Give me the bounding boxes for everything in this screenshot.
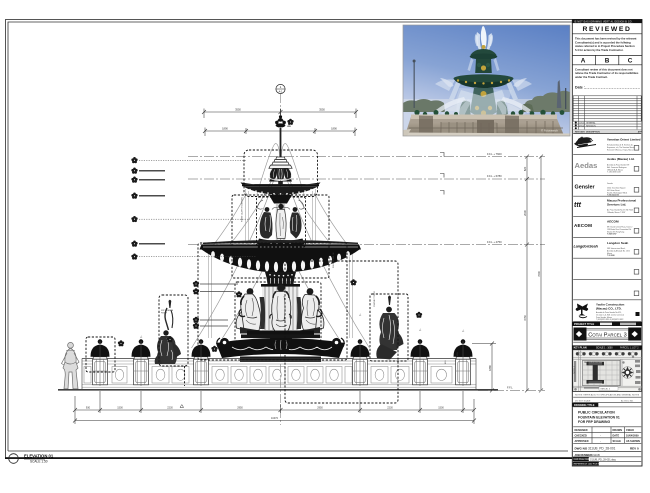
svg-text:10470: 10470 [271, 417, 279, 420]
svg-text:NOTES: REFER ALSO TO SPECIFICA: NOTES: REFER ALSO TO SPECIFICATION AND G… [575, 394, 640, 397]
svg-text:A: A [581, 58, 586, 65]
svg-text:ELEVATION 01: ELEVATION 01 [24, 454, 54, 459]
svg-text:F.F.L + 7600: F.F.L + 7600 [487, 152, 502, 156]
svg-text:CHECKED: CHECKED [575, 434, 588, 437]
svg-text:DATE: DATE [580, 130, 586, 133]
svg-text:APP: APP [638, 130, 643, 133]
svg-text:FINISH: FINISH [161, 313, 168, 315]
svg-text:relieve the Trade Contractor o: relieve the Trade Contractor of its resp… [575, 71, 639, 75]
svg-text:Executive Offices-L2, Taipa, M: Executive Offices-L2, Taipa, Macau [607, 148, 633, 151]
svg-text:Gensler: Gensler [575, 185, 596, 191]
svg-text:1880: 1880 [488, 365, 492, 371]
svg-text:FIBRE GLASS FOUNTAIN: FIBRE GLASS FOUNTAIN [241, 197, 244, 222]
svg-text:CAD FILE NAME: CAD FILE NAME [574, 458, 592, 461]
svg-text:DRAWING TITLE: DRAWING TITLE [574, 403, 595, 407]
svg-text:14 Andar, Macau T 2837: 14 Andar, Macau T 2837 [607, 211, 625, 214]
svg-text:820: 820 [523, 166, 527, 171]
svg-text:PARCEL 1: PARCEL 1 [573, 366, 576, 374]
svg-text:PROJECT TITLE: PROJECT TITLE [574, 322, 594, 326]
svg-text:A1 594 x 841: A1 594 x 841 [621, 399, 634, 402]
svg-text:2950: 2950 [237, 407, 243, 410]
svg-text:C: C [628, 58, 633, 65]
svg-text:DWG NO: DWG NO [575, 446, 588, 450]
svg-text:311UB: 311UB [592, 453, 600, 457]
svg-text:SCALE 1 : 1000: SCALE 1 : 1000 [596, 347, 613, 350]
svg-text:10/04: 10/04 [579, 123, 585, 125]
svg-text:4750: 4750 [523, 315, 527, 321]
svg-text:1890: 1890 [222, 127, 228, 131]
svg-text:Date :: Date : [575, 85, 585, 89]
svg-text:DATE: DATE [613, 434, 620, 437]
svg-text:This document has been revised: This document has been revised by the re… [575, 37, 636, 41]
svg-text:status referred to in Projec: status referred to in Project Procedure … [575, 44, 635, 48]
svg-text:SCALE: SCALE [613, 440, 622, 443]
svg-text:REVISION: REVISION [586, 125, 596, 127]
svg-text:311UB_PD_28-001: 311UB_PD_28-001 [588, 446, 616, 450]
svg-text:KEY PLAN: KEY PLAN [574, 346, 587, 350]
svg-text:REVIEWED: REVIEWED [582, 26, 631, 33]
svg-text:Services Ltd.: Services Ltd. [607, 202, 626, 206]
svg-text:F.F.L: F.F.L [507, 386, 513, 390]
svg-text:PUBLIC CIRCULATION: PUBLIC CIRCULATION [578, 411, 615, 415]
svg-text:930: 930 [86, 407, 91, 410]
svg-text:PARCEL 1, LOT 2: PARCEL 1, LOT 2 [620, 347, 639, 350]
svg-text:DESIGNED: DESIGNED [575, 429, 588, 432]
svg-text:09/04: 09/04 [579, 125, 585, 127]
svg-text:PARCEL 3: PARCEL 3 [601, 388, 611, 391]
svg-text:B: B [605, 58, 610, 65]
svg-text:3550: 3550 [235, 108, 241, 112]
svg-text:Gensler: Gensler [607, 182, 613, 185]
svg-text:2950: 2950 [317, 407, 323, 410]
svg-text:Consultants(s) and is accorded: Consultants(s) and is accorded the follw… [575, 40, 631, 44]
svg-text:Venetian Orient Limited: Venetian Orient Limited [607, 138, 641, 142]
svg-text:REV 0: REV 0 [630, 446, 639, 450]
svg-text:T 28 2826: T 28 2826 [607, 255, 615, 257]
svg-text:FULL DETAIL 02: FULL DETAIL 02 [332, 252, 335, 268]
svg-text:AECOM: AECOM [574, 223, 592, 228]
svg-text:311UB_PD_28-001.dwg: 311UB_PD_28-001.dwg [590, 458, 616, 461]
svg-text:GENERAL: GENERAL [586, 122, 596, 125]
svg-text:F.F.L + 6780: F.F.L + 6780 [487, 174, 502, 178]
svg-text:Aedas: Aedas [575, 161, 598, 170]
svg-text:PARCEL 1, LOT 2: PARCEL 1, LOT 2 [584, 361, 599, 364]
svg-text:Consultant review of this docu: Consultant review of this document does … [575, 67, 633, 71]
svg-text:5.4 for action by the Trade Co: 5.4 for action by the Trade Contractor. [575, 48, 624, 52]
svg-text:under the Trade Contract.: under the Trade Contract. [575, 75, 608, 79]
svg-text:DO NOT SCALE: DO NOT SCALE [575, 399, 591, 402]
svg-text:T +853 2833 1133: T +853 2833 1133 [607, 172, 621, 174]
svg-text:FOUNTAIN ELEVATION 01: FOUNTAIN ELEVATION 01 [578, 415, 620, 419]
svg-text:F.F.L + 4750: F.F.L + 4750 [487, 240, 502, 244]
svg-text:1500: 1500 [438, 407, 444, 410]
svg-text:2030: 2030 [523, 210, 527, 216]
svg-text:LangdonSeah: LangdonSeah [574, 245, 599, 249]
svg-text:IS NOT EASI DRAWNG VERT AL: IS NOT EASI DRAWNG VERT AL DESIGN B CO. [574, 20, 633, 23]
svg-text:JOB NUMBER: JOB NUMBER [575, 453, 593, 457]
svg-text:2230: 2230 [387, 407, 393, 410]
svg-text:1890: 1890 [331, 127, 337, 131]
svg-text:APPROVED: APPROVED [575, 440, 589, 443]
svg-text:1500: 1500 [117, 407, 123, 410]
svg-text:REFERENCE CAD FILE NAME: REFERENCE CAD FILE NAME [574, 463, 605, 466]
svg-text:T 2828 5757: T 2828 5757 [607, 234, 617, 236]
svg-text:AECOM: AECOM [607, 220, 619, 224]
svg-text:2230: 2230 [167, 407, 173, 410]
svg-text:STATUE TYPE B: STATUE TYPE B [373, 291, 376, 307]
svg-text:7600: 7600 [537, 271, 541, 277]
svg-text:Langdon Seah: Langdon Seah [607, 241, 628, 245]
svg-text:FOR FRP DRAWING: FOR FRP DRAWING [578, 420, 611, 424]
svg-text:© Fotosearch: © Fotosearch [541, 129, 558, 133]
svg-text:DRAWN: DRAWN [613, 429, 623, 432]
svg-text:Aedas (Macau) Ltd.: Aedas (Macau) Ltd. [607, 157, 635, 161]
svg-text:10/04/2009: 10/04/2009 [626, 434, 639, 437]
svg-text:SCALE 1:50: SCALE 1:50 [30, 460, 48, 464]
svg-text:A-1: A-1 [279, 91, 283, 94]
svg-text:​ttt: ​ttt [574, 202, 582, 209]
svg-text:(Macau) CO., LTD.: (Macau) CO., LTD. [596, 306, 622, 310]
svg-text:3550: 3550 [319, 108, 325, 112]
svg-text:AS SHOWN: AS SHOWN [626, 440, 640, 443]
svg-text:CWHO: CWHO [626, 429, 634, 432]
svg-text:T (853)2871 8855 F (853)2871: T (853)2871 8855 F (853)2871 8822 [596, 319, 623, 321]
